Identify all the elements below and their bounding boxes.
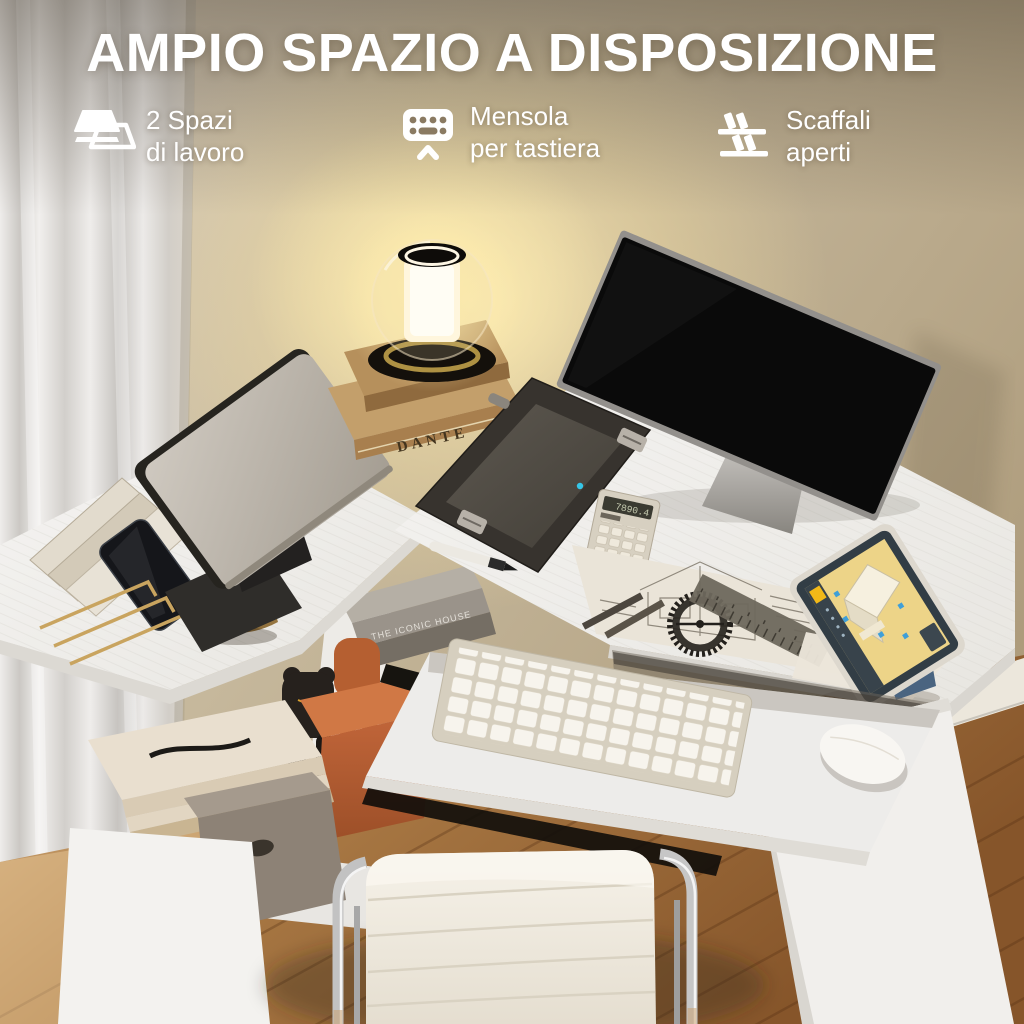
feature-open-shelves-line2: aperti (786, 136, 871, 168)
feature-open-shelves: Scaffali aperti (712, 104, 871, 168)
headline: AMPIO SPAZIO A DISPOSIZIONE (0, 22, 1024, 84)
feature-keyboard-shelf-line2: per tastiera (470, 132, 600, 164)
feature-workspaces-line2: di lavoro (146, 136, 244, 168)
feature-open-shelves-label: Scaffali aperti (786, 104, 871, 168)
feature-workspaces: 2 Spazi di lavoro (72, 104, 244, 168)
tablet-led (577, 483, 583, 489)
feature-keyboard-shelf: Mensola per tastiera (396, 100, 600, 164)
two-worktops-icon (72, 104, 136, 168)
product-marketing-image: THE ICONIC HOUSE (0, 0, 1024, 1024)
office-chair (265, 850, 765, 1024)
feature-keyboard-shelf-line1: Mensola (470, 100, 600, 132)
table-lamp (340, 208, 524, 392)
feature-workspaces-line1: 2 Spazi (146, 104, 244, 136)
keyboard-tray-icon (396, 100, 460, 164)
feature-workspaces-label: 2 Spazi di lavoro (146, 104, 244, 168)
cabinet-side-panel (58, 828, 270, 1024)
feature-open-shelves-line1: Scaffali (786, 104, 871, 136)
open-shelves-icon (712, 104, 776, 168)
feature-keyboard-shelf-label: Mensola per tastiera (470, 100, 600, 164)
